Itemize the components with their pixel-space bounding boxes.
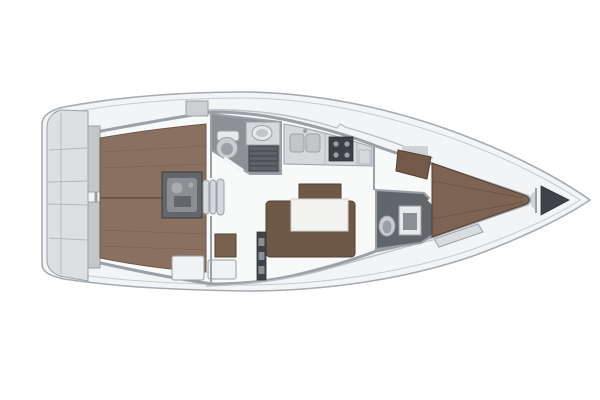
cockpit-locker-port	[172, 256, 204, 280]
burner	[344, 141, 349, 146]
engine-cap	[189, 183, 194, 188]
aft-toilet-seat	[221, 143, 233, 155]
step-3	[217, 179, 224, 215]
locker-panel	[259, 266, 265, 274]
step-2	[210, 180, 216, 214]
aft-head-sink-drain	[256, 129, 268, 137]
cockpit-locker-starboard	[208, 260, 236, 279]
companionway-seat	[215, 234, 236, 257]
yacht-floorplan-canvas	[0, 0, 600, 400]
burner	[344, 152, 349, 157]
engine-compartment	[162, 172, 202, 218]
companionway-steps	[203, 179, 224, 215]
engine-head	[174, 196, 191, 207]
cockpit-hatch	[186, 101, 208, 116]
saloon-bench-forward	[299, 184, 341, 201]
shower-grate	[249, 146, 278, 171]
saloon-table	[291, 199, 348, 231]
forward-toilet-seat	[383, 221, 392, 234]
engine-pulley	[172, 183, 183, 194]
locker-panel	[259, 252, 265, 260]
burner	[333, 152, 338, 157]
helm-seat-starboard	[88, 202, 100, 268]
yacht-floorplan	[0, 0, 600, 400]
galley-sink-left	[290, 134, 304, 152]
locker-panel	[259, 238, 265, 246]
burner	[333, 141, 338, 146]
galley-sink-right	[306, 134, 320, 152]
helm-seat-port	[88, 126, 100, 192]
forward-head-sink	[403, 213, 417, 230]
galley-stove	[329, 137, 353, 161]
swim-platform-deck	[47, 110, 88, 281]
step-1	[203, 180, 209, 214]
galley-faucet	[303, 129, 307, 133]
